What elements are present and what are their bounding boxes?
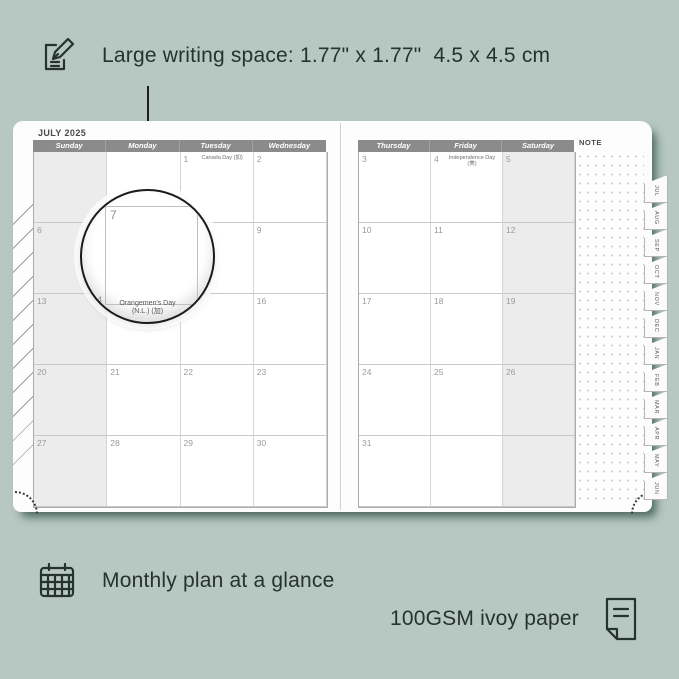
month-tab-apr: APR [644, 418, 668, 446]
calendar-cell: 2 [254, 152, 327, 223]
month-title: JULY 2025 [38, 128, 86, 138]
calendar-cell: 3 [359, 152, 431, 223]
day-number: 17 [362, 296, 371, 306]
day-number: 30 [257, 438, 266, 448]
note-label: NOTE [579, 138, 602, 147]
calendar-cell: 17 [359, 294, 431, 365]
calendar-cell: 9 [254, 223, 327, 294]
right-calendar-grid: 34Independence Day (美)510111217181924252… [358, 152, 576, 508]
day-header: Tuesday [180, 140, 253, 152]
day-number: 4 [434, 154, 439, 164]
paper-spec-label: 100GSM ivoy paper [390, 607, 579, 631]
calendar-cell: 5 [503, 152, 575, 223]
month-tab-label: DEC [653, 319, 659, 332]
month-tab-label: SEP [653, 239, 659, 252]
magnified-holiday-line2: (N.L.) (加) [82, 308, 213, 316]
note-dot-grid [576, 152, 644, 504]
day-header: Saturday [502, 140, 574, 152]
month-tab-label: OCT [653, 265, 659, 278]
month-tab-label: NOV [653, 292, 659, 306]
holiday-label: Canada Day (加) [194, 155, 251, 161]
day-number: 22 [184, 367, 193, 377]
calendar-cell: 24 [359, 365, 431, 436]
day-number: 31 [362, 438, 371, 448]
day-number: 13 [37, 296, 46, 306]
calendar-cell: 27 [34, 436, 107, 507]
calendar-cell: 26 [503, 365, 575, 436]
day-number: 2 [257, 154, 262, 164]
day-number: 20 [37, 367, 46, 377]
month-tab-jan: JAN [644, 337, 668, 365]
day-number: 25 [434, 367, 443, 377]
month-tab-nov: NOV [644, 283, 668, 311]
calendar-cell: 18 [431, 294, 503, 365]
month-tab-feb: FEB [644, 364, 668, 392]
paper-sheet-icon [597, 594, 643, 644]
day-number: 19 [506, 296, 515, 306]
monthly-plan-label: Monthly plan at a glance [102, 569, 334, 593]
day-number: 3 [362, 154, 367, 164]
day-header: Thursday [358, 140, 430, 152]
calendar-cell: 10 [359, 223, 431, 294]
day-header: Monday [106, 140, 179, 152]
day-header: Wednesday [253, 140, 326, 152]
calendar-cell: 4Independence Day (美) [431, 152, 503, 223]
day-number: 11 [434, 225, 443, 235]
month-tab-label: AUG [653, 211, 659, 225]
calendar-cell: 30 [254, 436, 327, 507]
page-edge-hatching [13, 201, 34, 477]
day-number: 27 [37, 438, 46, 448]
magnified-holiday-text: Orangemen's Day (N.L.) (加) [82, 300, 213, 315]
bottom-left-callout: Monthly plan at a glance [36, 560, 334, 602]
large-writing-space-label: Large writing space: 1.77" x 1.77" 4.5 x… [102, 44, 550, 68]
magnified-holiday-line1: Orangemen's Day [82, 300, 213, 308]
day-header: Friday [430, 140, 502, 152]
calendar-cell: 28 [107, 436, 180, 507]
calendar-cell: 23 [254, 365, 327, 436]
planner-spread: JULY 2025 SundayMondayTuesdayWednesday 1… [13, 121, 652, 512]
month-tab-dec: DEC [644, 310, 668, 338]
month-tab-label: MAY [653, 454, 659, 467]
pencil-note-icon [38, 36, 78, 76]
day-number: 6 [37, 225, 42, 235]
day-number: 29 [184, 438, 193, 448]
calendar-cell [431, 436, 503, 507]
right-day-header-row: ThursdayFridaySaturday [358, 140, 574, 152]
calendar-cell: 19 [503, 294, 575, 365]
calendar-cell: 29 [181, 436, 254, 507]
day-number: 23 [257, 367, 266, 377]
calendar-grid-icon [36, 560, 78, 602]
month-tab-label: JUL [653, 185, 659, 197]
calendar-cell: 11 [431, 223, 503, 294]
calendar-cell [503, 436, 575, 507]
calendar-cell: 31 [359, 436, 431, 507]
month-tab-label: FEB [653, 374, 659, 387]
month-tab-aug: AUG [644, 202, 668, 230]
day-number: 21 [110, 367, 119, 377]
calendar-cell: 25 [431, 365, 503, 436]
bottom-right-callout: 100GSM ivoy paper [390, 594, 643, 644]
day-header: Sunday [33, 140, 106, 152]
month-tab-jul: JUL [644, 175, 668, 203]
top-callout: Large writing space: 1.77" x 1.77" 4.5 x… [38, 36, 550, 76]
month-tab-label: MAR [653, 400, 659, 414]
day-number: 10 [362, 225, 371, 235]
product-image: Large writing space: 1.77" x 1.77" 4.5 x… [0, 0, 679, 679]
calendar-cell: 20 [34, 365, 107, 436]
month-tab-mar: MAR [644, 391, 668, 419]
month-tab-label: APR [653, 427, 659, 440]
day-number: 18 [434, 296, 443, 306]
day-number: 16 [257, 296, 266, 306]
page-spine [340, 123, 341, 510]
day-number: 5 [506, 154, 511, 164]
calendar-cell: 12 [503, 223, 575, 294]
month-tab-sep: SEP [644, 229, 668, 257]
day-number: 9 [257, 225, 262, 235]
calendar-cell: 22 [181, 365, 254, 436]
calendar-cell: 21 [107, 365, 180, 436]
day-number: 24 [362, 367, 371, 377]
corner-perforation-left [0, 491, 38, 537]
calendar-cell: 16 [254, 294, 327, 365]
day-number: 26 [506, 367, 515, 377]
month-tab-may: MAY [644, 445, 668, 473]
day-number: 12 [506, 225, 515, 235]
magnified-day-cell: 7 [105, 206, 198, 305]
day-number: 28 [110, 438, 119, 448]
magnified-day-number: 7 [110, 208, 117, 222]
month-tab-jun: JUN [644, 472, 668, 500]
month-tab-label: JAN [653, 347, 659, 359]
holiday-label: Independence Day (美) [444, 155, 500, 167]
magnifier-circle: 7 4 Orangemen's Day (N.L.) (加) [80, 189, 215, 324]
left-day-header-row: SundayMondayTuesdayWednesday [33, 140, 326, 152]
day-number: 1 [184, 154, 189, 164]
month-tabs: JULAUGSEPOCTNOVDECJANFEBMARAPRMAYJUN [644, 176, 668, 500]
month-tab-oct: OCT [644, 256, 668, 284]
month-tab-label: JUN [653, 482, 659, 495]
